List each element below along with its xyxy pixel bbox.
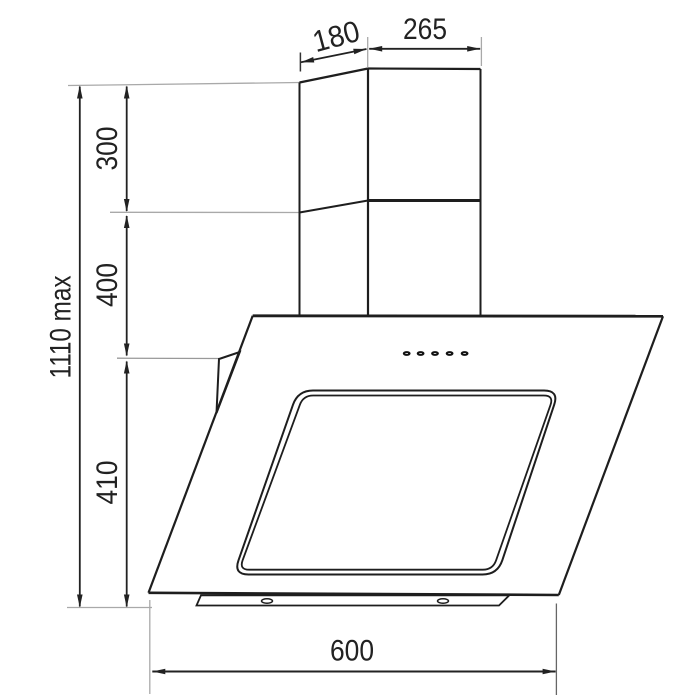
- svg-text:600: 600: [330, 635, 374, 668]
- svg-text:400: 400: [91, 263, 124, 307]
- svg-text:265: 265: [403, 13, 447, 46]
- svg-text:410: 410: [91, 461, 124, 505]
- svg-text:300: 300: [91, 127, 124, 171]
- svg-text:1110 max: 1110 max: [45, 276, 78, 379]
